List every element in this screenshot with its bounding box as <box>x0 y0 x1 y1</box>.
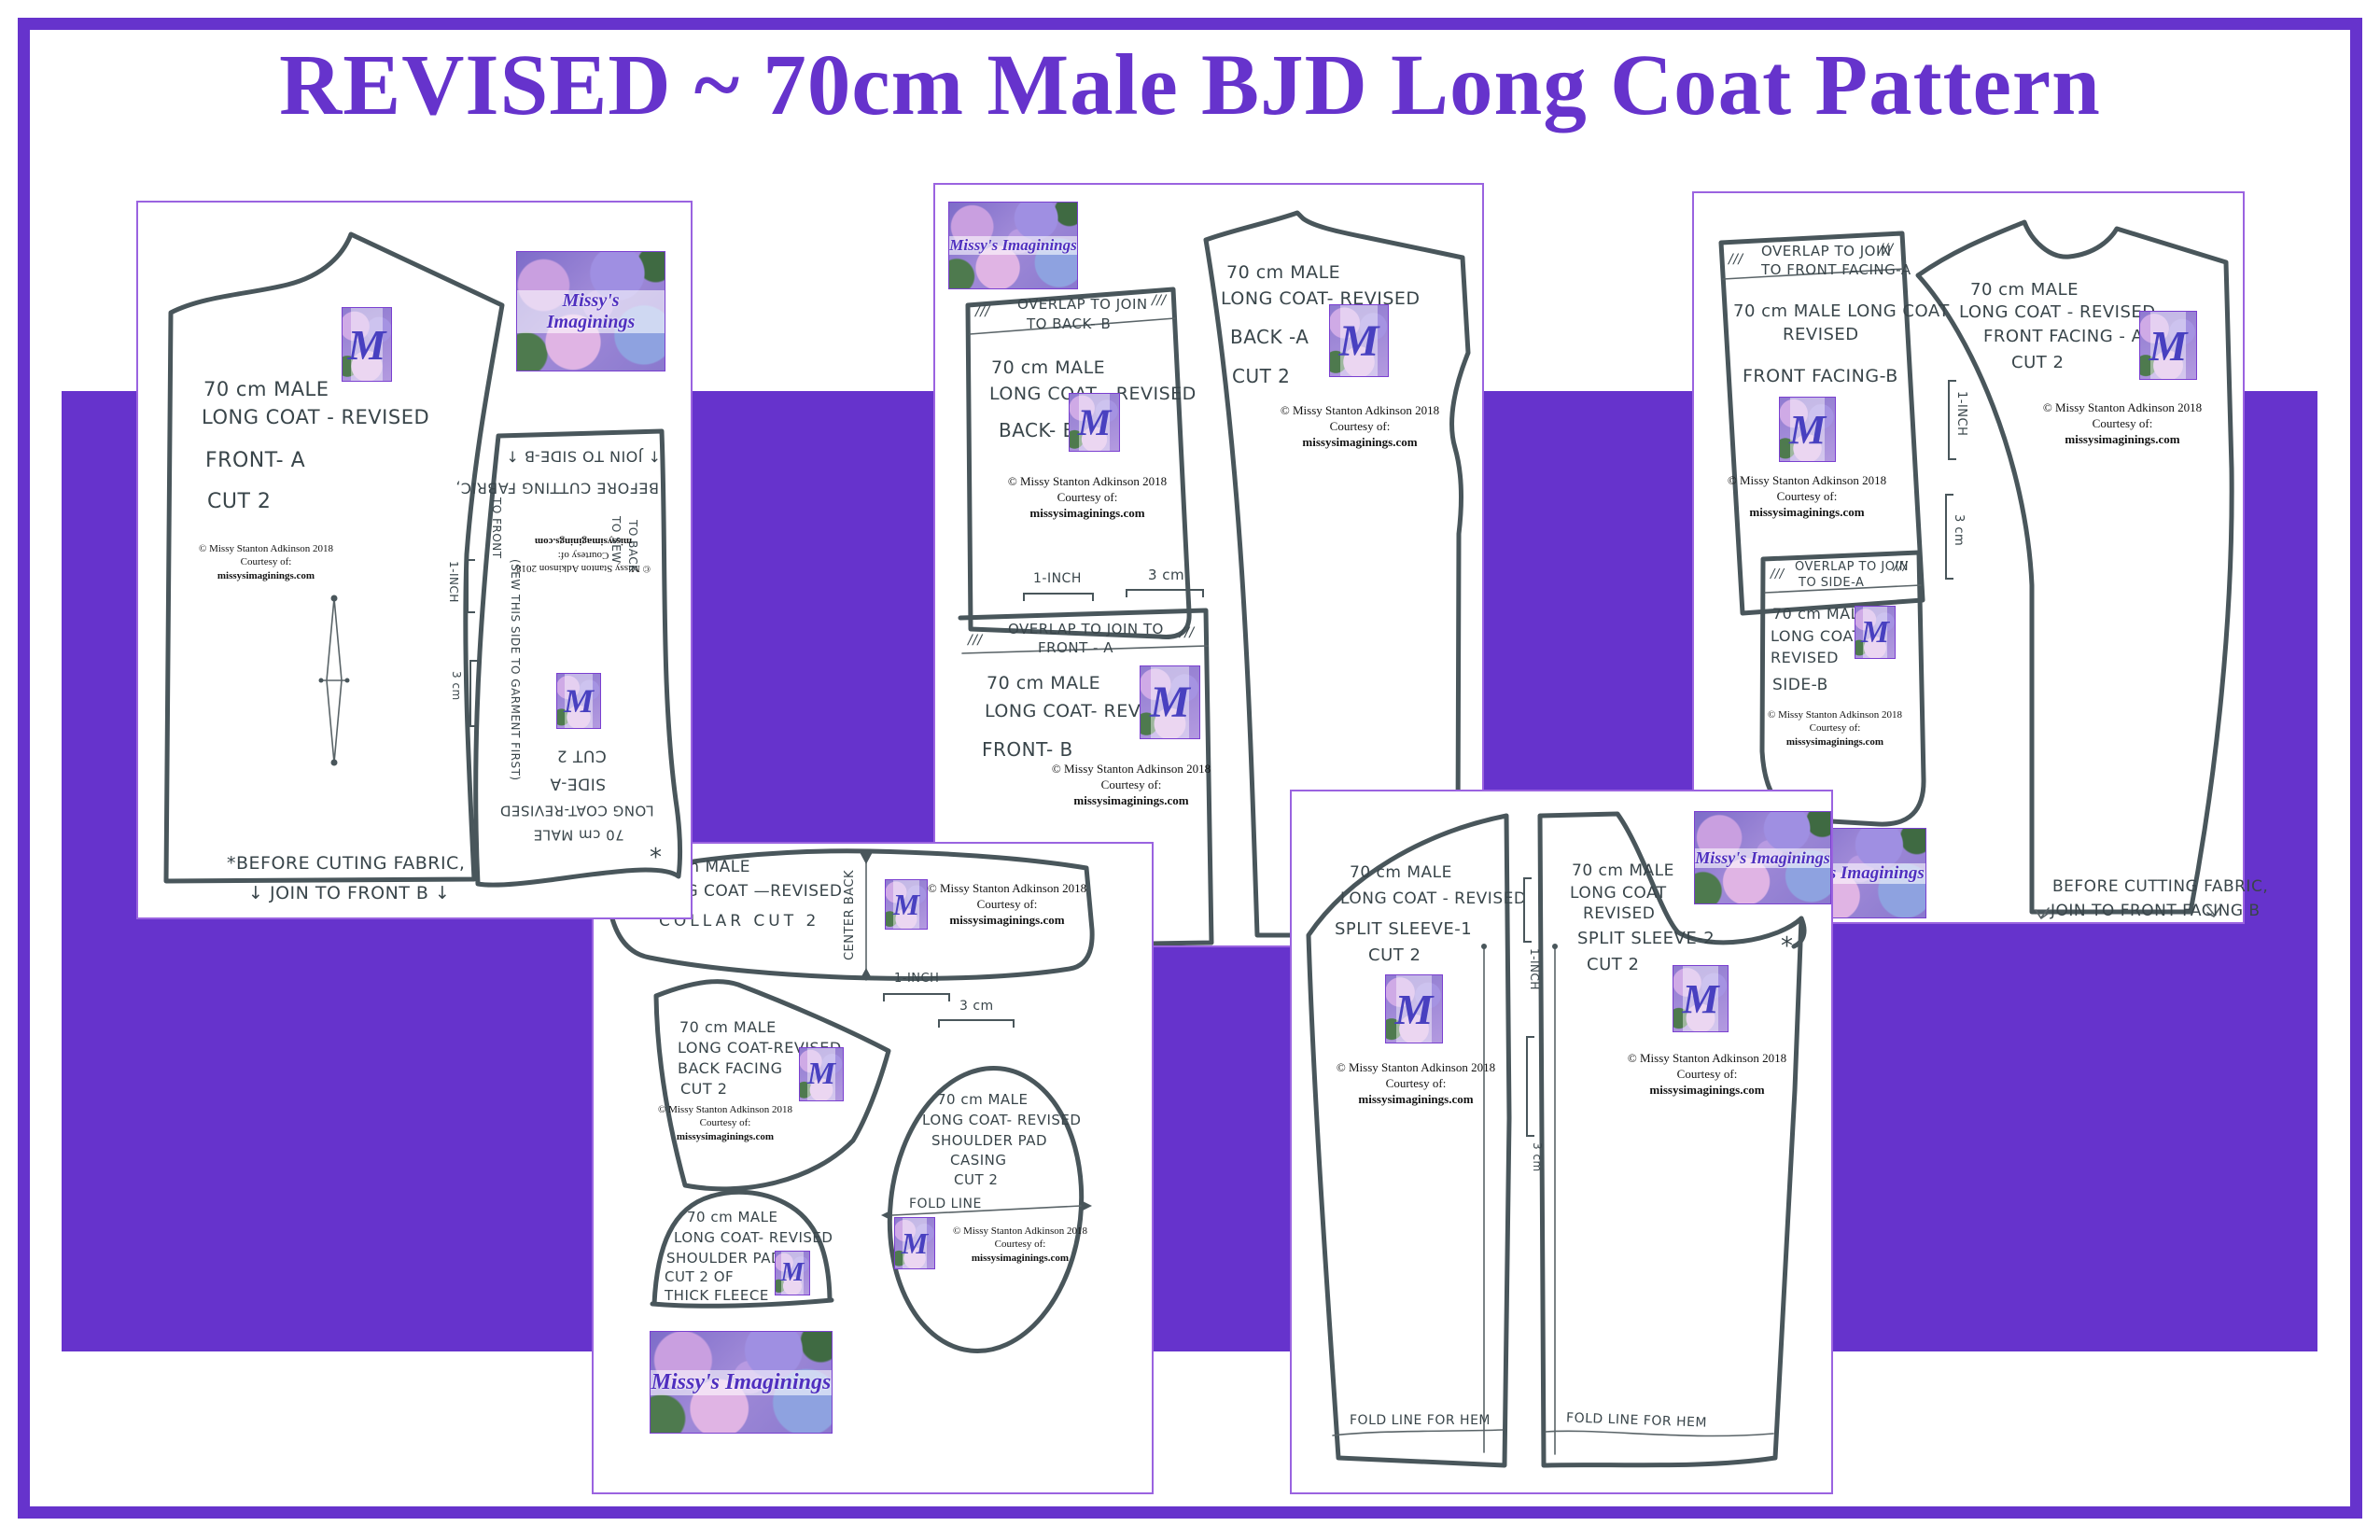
cm-ruler-label: 3 cm <box>1951 514 1965 546</box>
sleeve1-label-4: CUT 2 <box>1368 946 1421 966</box>
monogram-m: M <box>2149 321 2188 371</box>
facing-a-label-3: FRONT FACING - A <box>1983 328 2143 347</box>
front-b-label-1: 70 cm MALE <box>987 674 1100 694</box>
inch-ruler <box>1523 877 1525 943</box>
side-a-label-name: SIDE-A <box>526 774 629 792</box>
cm-ruler <box>938 1019 1015 1021</box>
casing-label-4: CASING <box>950 1153 1007 1169</box>
side-a-join-note-text: JOIN TO SIDE-B <box>524 447 642 465</box>
side-a-to-front-label: TO FRONT <box>489 497 502 559</box>
front-b-label-3: FRONT- B <box>982 739 1073 761</box>
shoulder-pad-label-1: 70 cm MALE <box>687 1210 778 1225</box>
sleeve1-label-3: SPLIT SLEEVE-1 <box>1335 920 1472 940</box>
hatch-mark: /// <box>1729 252 1743 267</box>
monogram-logo: M <box>894 1217 935 1269</box>
banner-text: Missy's Imaginings <box>1695 848 1830 868</box>
side-a-join-note: ↑ JOIN TO SIDE-B ↑ <box>511 447 661 464</box>
facing-b-label-3: FRONT FACING-B <box>1743 367 1898 387</box>
hatch-mark: /// <box>1180 625 1195 640</box>
shoulder-pad-label-2: LONG COAT- REVISED <box>674 1230 833 1246</box>
cm-ruler <box>1126 589 1204 591</box>
cm-ruler <box>1526 1036 1528 1137</box>
copyright-block: © Missy Stanton Adkinson 2018 Courtesy o… <box>1043 762 1220 809</box>
casing-label-1: 70 cm MALE <box>937 1092 1029 1108</box>
back-facing-label-1: 70 cm MALE <box>679 1019 777 1036</box>
front-a-label-1: 70 cm MALE <box>203 378 329 400</box>
sheet-collar-facing-pads: 70cm MALE LONG COAT —REVISED COLLAR CUT … <box>592 842 1154 1494</box>
facing-a-label-4: CUT 2 <box>2011 354 2064 373</box>
back-b-label-1: 70 cm MALE <box>991 358 1105 379</box>
sheet-front-side-pieces: Missy's Imaginings M 70 cm MALE LONG COA… <box>136 201 693 919</box>
inch-ruler-label: 1-INCH <box>1527 948 1540 990</box>
shoulder-pad-label-3: SHOULDER PAD <box>666 1251 782 1267</box>
back-a-label-3: BACK -A <box>1230 327 1309 348</box>
monogram-logo: M <box>1673 965 1729 1032</box>
copyright-block: © Missy Stanton Adkinson 2018 Courtesy o… <box>187 542 345 582</box>
facing-a-note-1: BEFORE CUTTING FABRIC, <box>2052 878 2268 897</box>
monogram-m: M <box>1150 677 1190 728</box>
side-b-label-3: REVISED <box>1771 650 1839 666</box>
side-a-to-sew-label: TO SEW <box>609 516 622 564</box>
monogram-m: M <box>1395 985 1434 1034</box>
arrow-down: ↓ <box>248 883 263 903</box>
side-a-label-size: 70 cm MALE <box>513 826 644 842</box>
arrow-down: ↓ <box>435 883 450 903</box>
back-facing-label-4: CUT 2 <box>680 1081 727 1098</box>
page-title: REVISED ~ 70cm Male BJD Long Coat Patter… <box>0 35 2380 135</box>
side-b-label-4: SIDE-B <box>1772 677 1828 695</box>
cm-ruler-label: 3 cm <box>1148 567 1184 583</box>
missys-imaginings-banner: Missy's Imaginings <box>948 202 1078 289</box>
monogram-m: M <box>1682 975 1718 1023</box>
casing-label-2: LONG COAT- REVISED <box>922 1113 1081 1128</box>
hatch-mark: /// <box>968 633 983 648</box>
back-a-label-2: LONG COAT- REVISED <box>1221 289 1421 310</box>
asterisk-mark: * <box>650 845 663 873</box>
missys-imaginings-banner: Missy's Imaginings <box>516 251 665 371</box>
side-b-label-2: LONG COAT <box>1771 628 1862 645</box>
monogram-logo: M <box>1069 393 1120 452</box>
casing-label-3: SHOULDER PAD <box>931 1133 1047 1149</box>
monogram-m: M <box>893 888 919 922</box>
arrow-up: ↑ <box>648 447 661 465</box>
monogram-logo: M <box>799 1047 844 1101</box>
facing-b-band-line2: TO FRONT FACING-A <box>1761 262 1911 278</box>
monogram-m: M <box>781 1258 805 1288</box>
missys-imaginings-banner: Missy's Imaginings <box>650 1331 833 1434</box>
sleeve2-label-4: SPLIT SLEEVE-2 <box>1577 930 1715 949</box>
sleeve2-label-1: 70 cm MALE <box>1572 862 1674 881</box>
copyright-block: © Missy Stanton Adkinson 2018 Courtesy o… <box>1756 708 1914 749</box>
monogram-logo: M <box>1779 397 1836 462</box>
facing-b-label-1: 70 cm MALE LONG COAT <box>1733 302 1950 322</box>
facing-a-label-2: LONG COAT - REVISED <box>1959 303 2156 323</box>
hatch-mark: /// <box>1771 568 1785 582</box>
monogram-m: M <box>1861 615 1889 651</box>
banner-text: Missy's Imaginings <box>949 236 1077 255</box>
inch-ruler-label: 1-INCH <box>1033 571 1082 586</box>
monogram-logo: M <box>342 307 392 382</box>
pattern-collage: { "title": "REVISED ~ 70cm Male BJD Long… <box>0 0 2380 1540</box>
shoulder-pad-label-5: THICK FLEECE <box>665 1288 769 1304</box>
monogram-m: M <box>1078 400 1112 444</box>
monogram-logo: M <box>2139 311 2197 380</box>
facing-b-band-line1: OVERLAP TO JOIN <box>1761 244 1892 259</box>
copyright-block: © Missy Stanton Adkinson 2018 Courtesy o… <box>941 1225 1099 1265</box>
inch-ruler-label: 1-INCH <box>894 973 939 987</box>
side-a-before-note: BEFORE CUTTING FABRIC, <box>500 479 659 496</box>
monogram-m: M <box>564 681 594 721</box>
hatch-mark: /// <box>1152 293 1167 308</box>
facing-b-label-2: REVISED <box>1783 326 1859 345</box>
monogram-logo: M <box>1385 974 1443 1043</box>
hatch-mark: /// <box>975 304 990 319</box>
back-a-label-1: 70 cm MALE <box>1226 263 1340 284</box>
copyright-block: © Missy Stanton Adkinson 2018 Courtesy o… <box>1327 1060 1505 1108</box>
copyright-block: © Missy Stanton Adkinson 2018 Courtesy o… <box>646 1103 805 1143</box>
monogram-m: M <box>1789 406 1826 454</box>
cm-ruler <box>1945 494 1947 580</box>
inch-ruler <box>883 993 950 995</box>
shoulder-pad-label-4: CUT 2 OF <box>665 1269 734 1285</box>
inch-ruler <box>467 559 469 613</box>
front-a-label-4: CUT 2 <box>207 490 271 513</box>
front-a-note-2-text: JOIN TO FRONT B <box>270 883 429 903</box>
side-b-band-line1: OVERLAP TO JOIN <box>1795 561 1909 575</box>
sleeve2-label-2: LONG COAT <box>1570 885 1667 903</box>
cm-ruler <box>469 660 471 727</box>
front-a-label-2: LONG COAT - REVISED <box>202 406 429 428</box>
side-a-label-cut: CUT 2 <box>530 746 633 764</box>
banner-text: Missy's Imaginings <box>651 1370 832 1395</box>
sleeve1-label-1: 70 cm MALE <box>1350 864 1452 883</box>
side-a-label-coat: LONG COAT-REVISED <box>493 802 661 818</box>
sleeve1-label-2: LONG COAT - REVISED <box>1340 890 1526 909</box>
monogram-m: M <box>348 320 386 370</box>
sheet-sleeves: Missy's Imaginings 70 cm MALE LONG COAT … <box>1290 790 1833 1494</box>
facing-a-label-1: 70 cm MALE <box>1970 281 2079 301</box>
arrow-up: ↑ <box>506 447 519 465</box>
monogram-logo: M <box>775 1251 810 1295</box>
front-b-band-line1: OVERLAP TO JOIN TO <box>1008 622 1164 637</box>
copyright-block: © Missy Stanton Adkinson 2018 Courtesy o… <box>1718 473 1896 521</box>
front-b-band-line2: FRONT - A <box>1038 640 1113 656</box>
front-a-label-3: FRONT- A <box>205 449 305 472</box>
back-b-band-line1: OVERLAP TO JOIN <box>1017 297 1148 313</box>
sleeve2-label-5: CUT 2 <box>1587 956 1639 975</box>
missys-imaginings-banner: Missy's Imaginings <box>1694 811 1831 904</box>
cm-ruler-label: 3 cm <box>449 671 462 701</box>
cm-ruler-label: 3 cm <box>1530 1142 1543 1172</box>
monogram-m: M <box>1339 315 1379 367</box>
side-b-band-line2: TO SIDE-A <box>1799 577 1864 591</box>
casing-fold-line-label: FOLD LINE <box>909 1197 982 1211</box>
back-b-label-3: BACK- B <box>999 420 1076 441</box>
inch-ruler <box>1023 593 1094 595</box>
inch-ruler-label: 1-INCH <box>446 561 459 603</box>
copyright-block: © Missy Stanton Adkinson 2018 Courtesy o… <box>918 881 1096 929</box>
sleeve1-fold-hem-label: FOLD LINE FOR HEM <box>1350 1413 1491 1428</box>
back-b-band-line2: TO BACK- B <box>1027 316 1111 332</box>
copyright-block: © Missy Stanton Adkinson 2018 Courtesy o… <box>2034 400 2211 448</box>
front-a-note-1: *BEFORE CUTING FABRIC, <box>227 854 465 875</box>
facing-a-note-2: JOIN TO FRONT FACING B <box>2051 903 2261 921</box>
sleeve2-label-3: REVISED <box>1583 905 1655 924</box>
collar-center-back-label: CENTER BACK <box>844 870 858 960</box>
side-a-to-back-label: TO BACK <box>625 520 638 573</box>
casing-label-5: CUT 2 <box>954 1172 998 1188</box>
inch-ruler-label: 1-INCH <box>1953 391 1967 436</box>
monogram-logo: M <box>1140 665 1200 739</box>
monogram-m: M <box>902 1226 928 1261</box>
back-a-label-4: CUT 2 <box>1232 366 1290 387</box>
asterisk-mark: * <box>1781 933 1794 961</box>
back-facing-label-3: BACK FACING <box>678 1060 783 1077</box>
copyright-block: © Missy Stanton Adkinson 2018 Courtesy o… <box>999 474 1176 522</box>
banner-text: Missy's Imaginings <box>517 290 665 333</box>
monogram-m: M <box>807 1057 835 1092</box>
monogram-logo: M <box>1855 606 1896 659</box>
monogram-logo: M <box>1329 304 1389 377</box>
monogram-logo: M <box>556 673 601 729</box>
side-a-sew-note: (SEW THIS SIDE TO GARMENT FIRST) <box>508 559 521 781</box>
copyright-block: © Missy Stanton Adkinson 2018 Courtesy o… <box>1618 1051 1796 1099</box>
inch-ruler <box>1948 380 1950 460</box>
front-a-note-2: ↓ JOIN TO FRONT B ↓ <box>248 884 450 904</box>
cm-ruler-label: 3 cm <box>959 999 994 1014</box>
copyright-block: © Missy Stanton Adkinson 2018 Courtesy o… <box>1271 403 1449 451</box>
